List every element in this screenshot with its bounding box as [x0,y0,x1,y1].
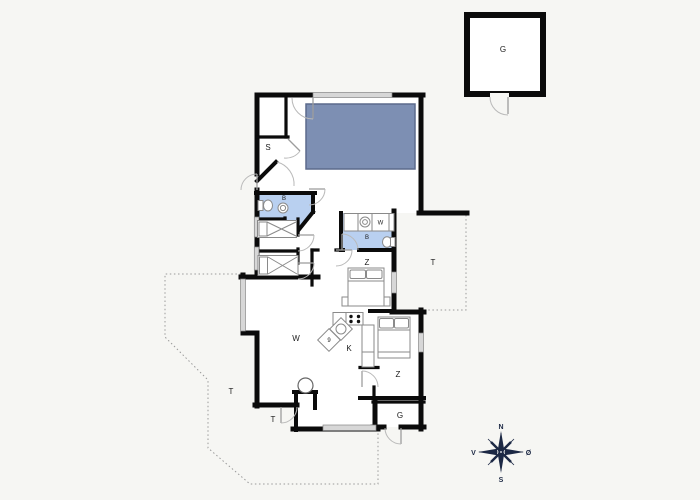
label-terrace-left: T [229,387,234,396]
double-bed-corner [378,317,410,358]
room-label-kitchen: K [346,344,352,353]
label-terrace-entry: T [271,415,276,424]
floor-plan-canvas: S B B W Z Z W K 9 G G T T T N S V Ø [0,0,700,500]
double-bed-middle [342,268,390,306]
label-terrace-right: T [431,258,436,267]
room-label-utility: G [397,411,403,420]
wood-stove-icon [298,378,313,393]
single-bed-1 [258,221,297,238]
floor-plan-page: S B B W Z Z W K 9 G G T T T N S V Ø [0,0,700,500]
compass-rose: N S V Ø [471,424,532,484]
room-label-bathroom1: B [282,196,286,202]
room-label-garage: G [500,45,506,54]
washer-label: W [378,221,384,227]
compass-north-label: N [498,424,503,431]
room-label-sauna: S [265,143,270,152]
pool [306,104,415,169]
room-label-bedroom-corner: Z [396,370,401,379]
room-label-bathroom2: B [365,235,369,241]
room-label-living: W [292,334,300,343]
single-bed-2 [258,256,298,276]
compass-east-label: Ø [526,450,532,457]
compass-south-label: S [499,477,504,484]
garage-floor [467,15,543,94]
room-label-bedroom-middle: Z [365,258,370,267]
compass-west-label: V [471,450,476,457]
